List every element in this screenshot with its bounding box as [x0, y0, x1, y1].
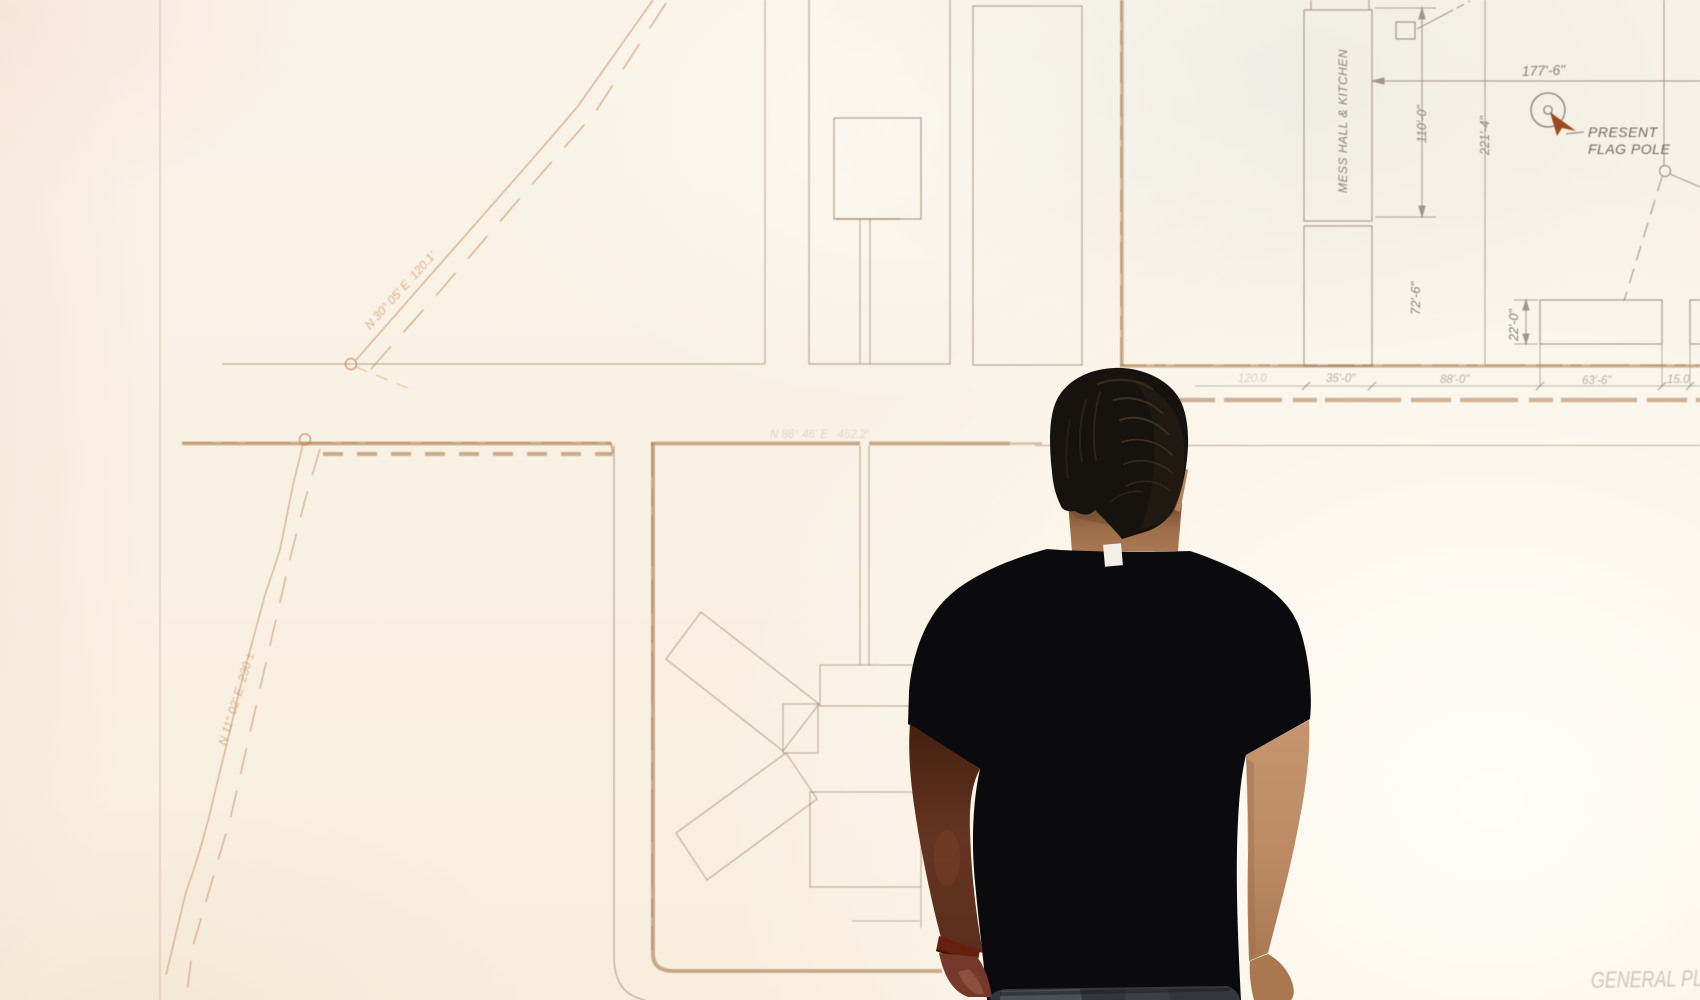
svg-text:221'-4": 221'-4": [1478, 116, 1492, 156]
svg-text:110'-0": 110'-0": [1415, 105, 1429, 143]
svg-text:72'-6": 72'-6": [1408, 280, 1423, 315]
svg-text:35'-0": 35'-0": [1326, 373, 1356, 385]
svg-text:15.0: 15.0: [1667, 374, 1690, 386]
svg-text:177'-6": 177'-6": [1522, 61, 1567, 79]
svg-text:120.0: 120.0: [1238, 373, 1267, 385]
svg-text:GENERAL PL: GENERAL PL: [1591, 965, 1700, 993]
svg-text:FLAG POLE: FLAG POLE: [1588, 141, 1670, 157]
svg-text:N 11° 02' E 230 ±: N 11° 02' E 230 ±: [215, 650, 257, 746]
svg-text:63'-6": 63'-6": [1582, 375, 1612, 387]
svg-text:PRESENT: PRESENT: [1588, 124, 1659, 140]
svg-text:N 86° 46' E 452.2': N 86° 46' E 452.2': [770, 429, 869, 441]
svg-text:N 30° 05' E 120.1': N 30° 05' E 120.1': [362, 248, 439, 332]
svg-text:MESS HALL & KITCHEN: MESS HALL & KITCHEN: [1336, 49, 1350, 193]
svg-text:22'-0": 22'-0": [1507, 309, 1521, 342]
svg-text:88'-0": 88'-0": [1440, 374, 1470, 386]
